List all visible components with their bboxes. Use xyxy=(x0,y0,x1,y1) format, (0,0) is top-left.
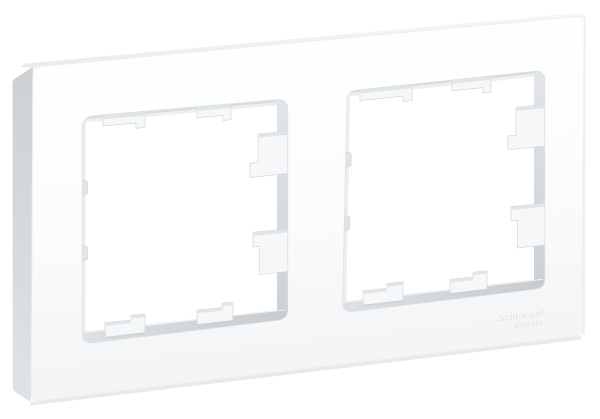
product-image: Schneider Schneider Electric Electric xyxy=(0,0,600,419)
left-window-opening xyxy=(75,95,292,356)
right-window-right-inner-wall xyxy=(534,66,546,294)
right-window-opening xyxy=(336,66,550,327)
mounting-tab-left-lower xyxy=(82,246,88,262)
right-window-hole xyxy=(343,71,545,311)
mounting-tab-left-upper xyxy=(346,152,352,168)
mounting-tab-left-lower xyxy=(344,216,350,232)
frame: Schneider Schneider Electric Electric xyxy=(12,13,585,406)
mounting-tab-left-upper xyxy=(82,180,88,196)
product-photo: Schneider Schneider Electric Electric xyxy=(0,0,600,419)
frame-left-side-face xyxy=(12,67,33,402)
left-window-hole xyxy=(82,100,288,343)
